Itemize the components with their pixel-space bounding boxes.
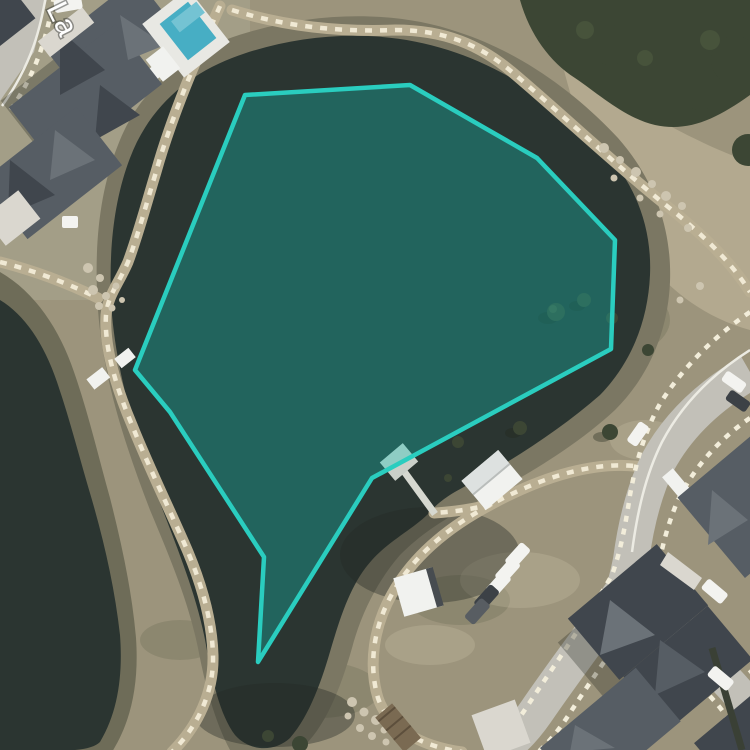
aerial-imagery: La (0, 0, 750, 750)
map-canvas[interactable]: La (0, 0, 750, 750)
wet-shore (195, 683, 355, 747)
car (62, 216, 78, 228)
